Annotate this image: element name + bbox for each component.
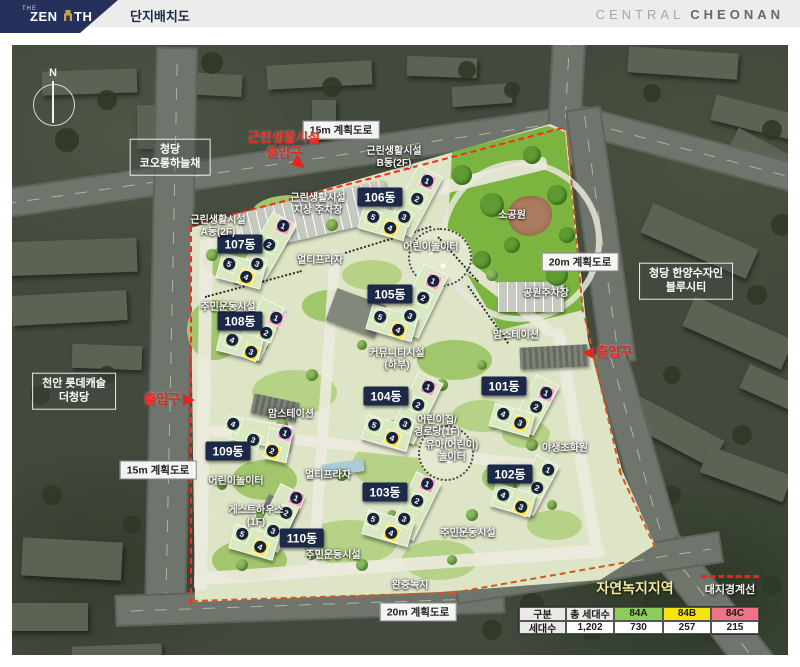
tree <box>559 227 575 243</box>
facility-label-line: 주민운동시설 <box>305 550 360 562</box>
table-84a-units: 730 <box>614 621 663 635</box>
entrance-arrow-icon <box>183 394 195 406</box>
unit-number: 1 <box>538 385 554 401</box>
facility-label-line: 멀티프라자 <box>305 470 351 482</box>
unit-number: 4 <box>225 416 241 432</box>
gate-icon <box>64 10 72 21</box>
site-boundary-left <box>190 226 192 604</box>
adjacent-building <box>12 238 138 277</box>
unit-number: 1 <box>268 310 284 326</box>
lawn-patch <box>527 510 582 540</box>
facility-label: 어린이놀이터 <box>403 242 458 254</box>
place-name-label: 청당 한양수자인블루시티 <box>639 263 733 300</box>
facility-label-line: 근린생활시설 <box>366 146 421 158</box>
unit-number: 5 <box>365 511 381 527</box>
facility-label-line: 어린이놀이터 <box>208 476 263 488</box>
unit-number: 1 <box>275 218 291 234</box>
tree <box>326 219 338 231</box>
table-header-84a: 84A <box>614 607 663 621</box>
brand-central: CENTRAL <box>596 7 685 22</box>
adjacent-building <box>21 537 123 580</box>
facility-label-line: (1F) <box>228 517 283 529</box>
tree <box>547 500 557 510</box>
place-name-line: 청당 <box>140 143 201 157</box>
adjacent-building <box>700 446 788 502</box>
unit-number: 3 <box>402 308 418 324</box>
table-header-category: 구분 <box>519 607 566 621</box>
adjacent-building <box>12 290 128 326</box>
tree <box>747 285 767 305</box>
logo-zen-text: ZEN <box>30 9 58 24</box>
page: { "header": { "logo_the": "THE", "logo_z… <box>0 0 800 667</box>
facility-label: 완충녹지 <box>392 580 429 592</box>
tree <box>473 251 491 269</box>
facility-label-line: 유아(어린이) <box>426 440 479 452</box>
place-name-line: 코오롱하늘채 <box>140 157 201 171</box>
building-label: 109동 <box>205 442 250 461</box>
unit-number: 2 <box>410 397 426 413</box>
tree <box>504 82 520 98</box>
unit-number: 4 <box>382 220 398 236</box>
road-label: 15m 계획도로 <box>120 461 197 480</box>
unit-number: 1 <box>288 490 304 506</box>
unit-number: 4 <box>495 406 511 422</box>
unit-number: 4 <box>390 322 406 338</box>
unit-number: 1 <box>420 379 436 395</box>
tree <box>466 509 478 521</box>
entrance-label-line: 근린생활시설 <box>248 131 320 146</box>
tree <box>762 120 782 140</box>
unit-number: 4 <box>252 539 268 555</box>
facility-label: 근린생활시설B동(2F) <box>366 146 421 170</box>
facility-label-line: 어린이집/ <box>414 415 460 427</box>
building-label: 102동 <box>487 465 532 484</box>
tree <box>306 369 318 381</box>
unit-number: 4 <box>383 525 399 541</box>
unit-number: 5 <box>365 209 381 225</box>
facility-label-line: 커뮤니티시설 <box>369 348 424 360</box>
unit-number: 5 <box>372 309 388 325</box>
adjacent-building <box>739 364 788 412</box>
unit-number: 1 <box>419 476 435 492</box>
building-label: 103동 <box>362 483 407 502</box>
tree <box>643 84 661 102</box>
table-header-84c: 84C <box>711 607 759 621</box>
table-total-units: 1,202 <box>566 621 614 635</box>
compass-needle <box>52 81 54 123</box>
facility-label: 맘스테이션 <box>268 409 314 421</box>
tree <box>452 165 472 185</box>
unit-number: 2 <box>264 443 280 459</box>
site-plan-map: N 자연녹지지역 대지경계선 구분 총 세대수 84A 84B 84C 세대수 … <box>12 45 788 655</box>
tree <box>55 128 79 152</box>
unit-number: 1 <box>540 462 556 478</box>
unit-number: 2 <box>409 493 425 509</box>
unit-number: 3 <box>396 511 412 527</box>
adjacent-building <box>682 296 788 369</box>
place-name-line: 더청당 <box>42 391 106 405</box>
tree <box>201 52 223 74</box>
building-label: 106동 <box>357 188 402 207</box>
unit-number: 3 <box>249 256 265 272</box>
entrance-arrow-icon <box>582 347 594 359</box>
road-label: 20m 계획도로 <box>542 253 619 272</box>
facility-label: 커뮤니티시설(하부) <box>369 348 424 372</box>
logo-th-text: TH <box>74 9 92 24</box>
building-label: 104동 <box>363 387 408 406</box>
tree <box>732 425 752 445</box>
facility-label: 어린이집/경로당(1F) <box>414 415 460 439</box>
facility-label-line: 멀티프라자 <box>297 255 343 267</box>
tree <box>97 90 117 110</box>
facility-label: 주민운동시설 <box>200 302 255 314</box>
tree <box>523 146 541 164</box>
mom-station-structure <box>519 344 588 370</box>
unit-number: 2 <box>528 399 544 415</box>
tree <box>526 439 538 451</box>
unit-number: 3 <box>513 499 529 515</box>
tree <box>357 340 367 350</box>
place-name-line: 청당 한양수자인 <box>649 267 723 281</box>
tree <box>123 516 141 534</box>
facility-label-line: (하부) <box>369 360 424 372</box>
table-row-label: 세대수 <box>519 621 566 635</box>
road-label: 20m 계획도로 <box>380 603 457 622</box>
facility-label-line: 완충녹지 <box>392 580 429 592</box>
adjacent-building <box>12 603 88 631</box>
facility-label-line: 맘스테이션 <box>493 330 539 342</box>
facility-label-line: 주민운동시설 <box>440 528 495 540</box>
facility-label-line: 야생초화원 <box>542 443 588 455</box>
facility-label: 소공원 <box>498 210 526 222</box>
tree <box>547 185 567 205</box>
unit-number: 2 <box>409 191 425 207</box>
page-title: 단지배치도 <box>130 6 190 25</box>
building-label: 105동 <box>367 285 412 304</box>
tree <box>504 237 520 253</box>
unit-number: 3 <box>243 344 259 360</box>
compass-circle <box>33 84 75 126</box>
compass-north-label: N <box>49 67 57 79</box>
unit-count-table: 구분 총 세대수 84A 84B 84C 세대수 1,202 730 257 2… <box>518 606 760 635</box>
entrance-label-line: 출입구 <box>596 346 632 361</box>
brand-cheonan: CHEONAN <box>690 7 784 22</box>
unit-number: 4 <box>238 269 254 285</box>
facility-label-line: 지상 주차장 <box>290 205 345 217</box>
tree <box>447 555 457 565</box>
tree <box>486 269 498 281</box>
building-label: 110동 <box>280 529 324 548</box>
legend-boundary-line-swatch <box>701 575 759 578</box>
entrance-label-line: 출입구 <box>144 393 180 408</box>
table-84b-units: 257 <box>663 621 711 635</box>
unit-number: 4 <box>384 430 400 446</box>
facility-label-line: 놀이터 <box>426 452 479 464</box>
tree <box>322 77 342 97</box>
unit-number: 1 <box>425 273 441 289</box>
compass: N <box>30 67 76 129</box>
place-name-label: 청당코오롱하늘채 <box>130 139 211 176</box>
place-name-line: 블루시티 <box>649 281 723 295</box>
unit-number: 3 <box>397 416 413 432</box>
facility-label-line: 공원주차장 <box>523 288 569 300</box>
unit-number: 5 <box>221 256 237 272</box>
unit-number: 2 <box>415 290 431 306</box>
table-header-total: 총 세대수 <box>566 607 614 621</box>
unit-number: 1 <box>419 173 435 189</box>
legend-site-boundary: 대지경계선 <box>705 581 756 597</box>
unit-number: 1 <box>277 425 293 441</box>
facility-label-line: 경로당(1F) <box>414 427 460 439</box>
place-name-line: 천안 롯데캐슬 <box>42 377 106 391</box>
tree <box>771 214 788 236</box>
facility-label: 유아(어린이)놀이터 <box>426 440 479 464</box>
place-name-label: 천안 롯데캐슬더청당 <box>32 373 116 410</box>
facility-label: 멀티프라자 <box>297 255 343 267</box>
facility-label-line: A동(2F) <box>190 227 245 239</box>
adjacent-building <box>266 60 372 89</box>
tree <box>482 620 502 640</box>
facility-label-line: 어린이놀이터 <box>403 242 458 254</box>
entrance-label: 근린생활시설출입구 <box>248 131 320 161</box>
facility-label: 어린이놀이터 <box>208 476 263 488</box>
building-label: 101동 <box>481 377 526 396</box>
facility-label: 게스트하우스(1F) <box>228 505 283 529</box>
unit-number: 2 <box>261 237 277 253</box>
facility-label-line: 주민운동시설 <box>200 302 255 314</box>
unit-number: 4 <box>495 487 511 503</box>
building-label: 108동 <box>217 312 262 331</box>
tree <box>236 559 248 571</box>
adjacent-building <box>627 46 739 80</box>
entrance-label-line: 출입구 <box>248 146 320 161</box>
unit-number: 5 <box>366 417 382 433</box>
facility-label-line: 근린생활시설 <box>190 215 245 227</box>
tree <box>206 249 218 261</box>
facility-label: 근린생활시설A동(2F) <box>190 215 245 239</box>
facility-label: 공원주차장 <box>523 288 569 300</box>
facility-label: 맘스테이션 <box>493 330 539 342</box>
tree <box>477 360 487 370</box>
unit-number: 3 <box>396 209 412 225</box>
entrance-label: 출입구 <box>144 393 180 408</box>
tree <box>762 575 782 595</box>
facility-label-line: B동(2F) <box>366 158 421 170</box>
brand-name: CENTRALCHEONAN <box>596 7 784 22</box>
tree <box>663 366 681 384</box>
table-header-84b: 84B <box>663 607 711 621</box>
unit-number: 4 <box>224 332 240 348</box>
facility-label-line: 소공원 <box>498 210 526 222</box>
facility-label-line: 맘스테이션 <box>268 409 314 421</box>
unit-number: 3 <box>512 415 528 431</box>
facility-label: 주민운동시설 <box>305 550 360 562</box>
facility-label: 근린생활시설지상 주차장 <box>290 193 345 217</box>
facility-label: 야생초화원 <box>542 443 588 455</box>
tree <box>458 61 476 79</box>
tree <box>42 485 62 505</box>
facility-label: 멀티프라자 <box>305 470 351 482</box>
facility-label-line: 게스트하우스 <box>228 505 283 517</box>
facility-label: 주민운동시설 <box>440 528 495 540</box>
facility-label-line: 근린생활시설 <box>290 193 345 205</box>
adjacent-building <box>72 643 163 655</box>
table-84c-units: 215 <box>711 621 759 635</box>
entrance-label: 출입구 <box>596 346 632 361</box>
legend-natural-green-zone: 자연녹지지역 <box>596 578 673 598</box>
